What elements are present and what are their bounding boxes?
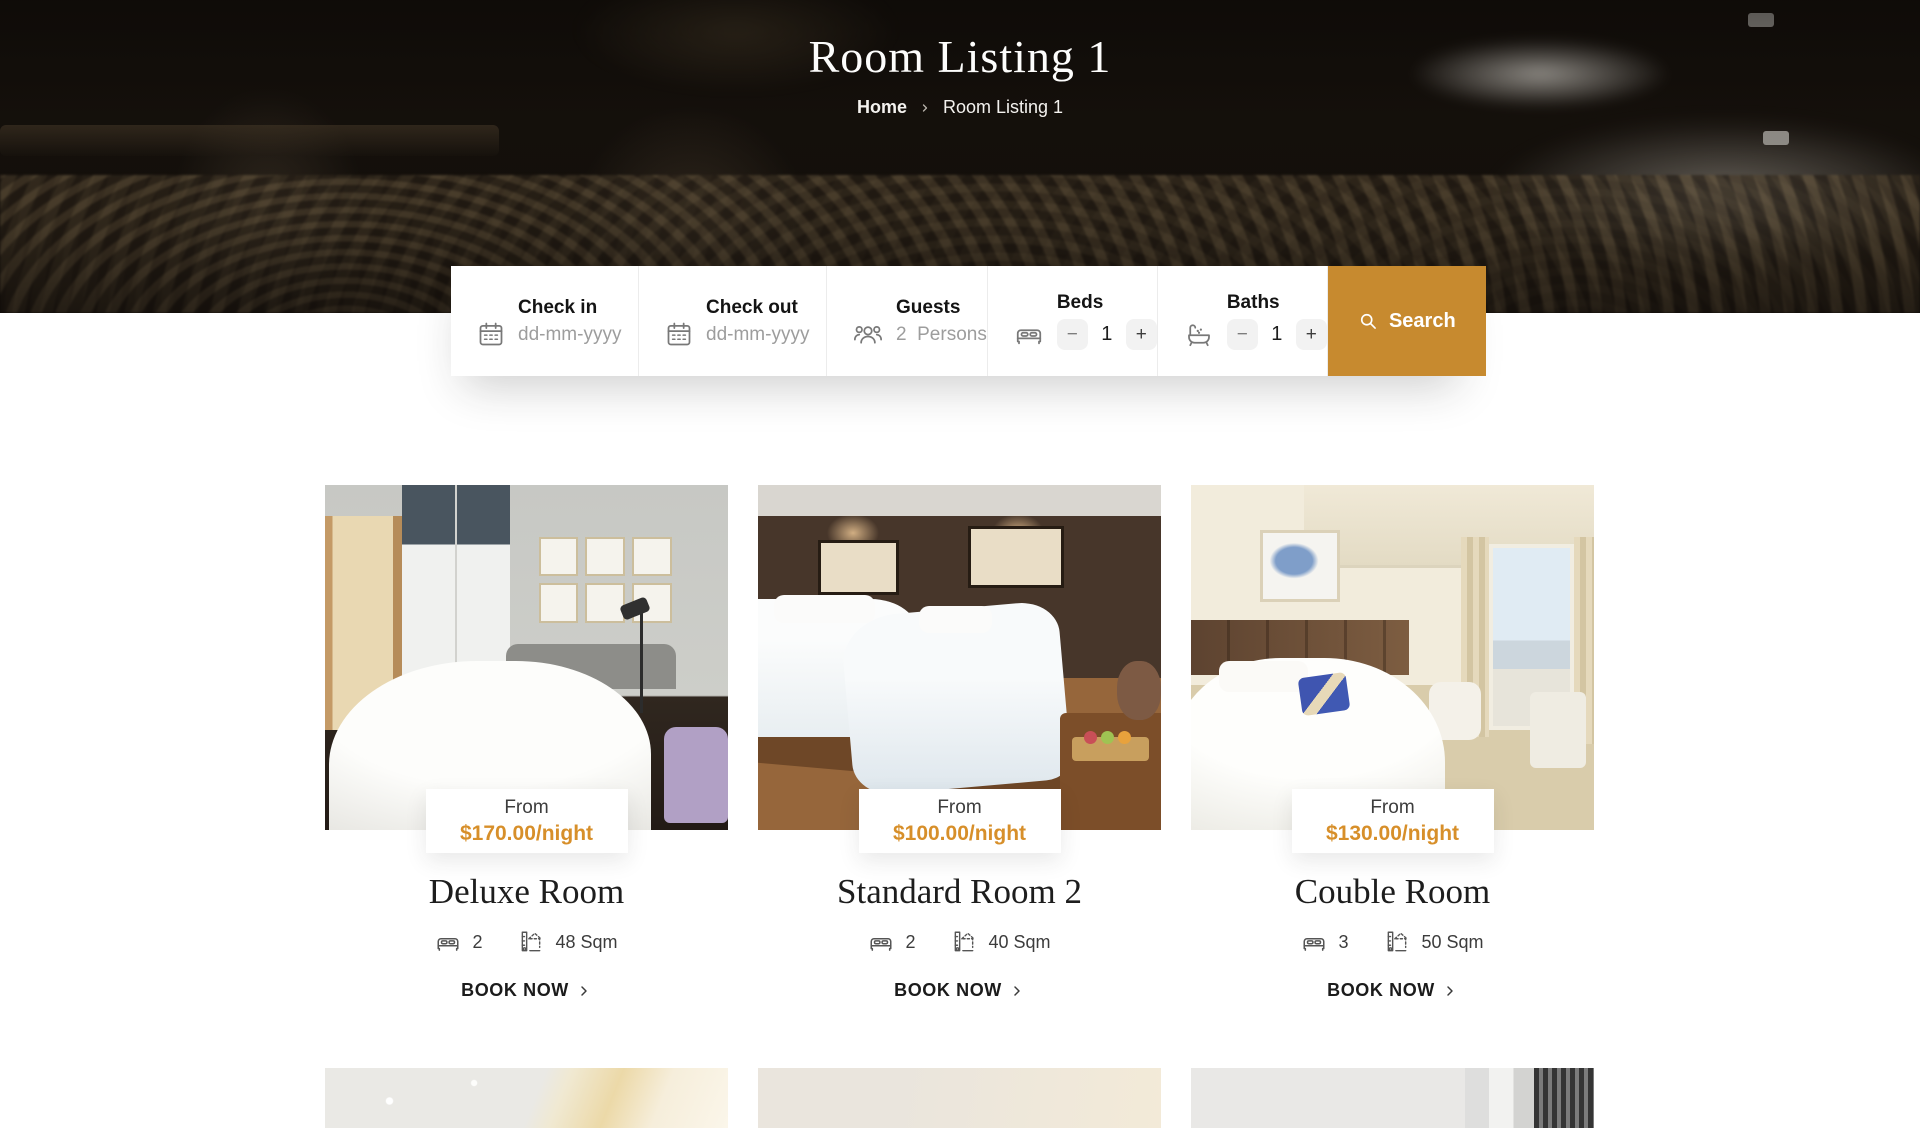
photo-wall-painting xyxy=(1260,530,1341,602)
check-in-input[interactable] xyxy=(518,324,638,346)
beds-feature: 2 xyxy=(868,929,915,955)
room-photo[interactable] xyxy=(758,485,1161,830)
breadcrumb-current: Room Listing 1 xyxy=(943,97,1063,118)
beds-increment-button[interactable]: + xyxy=(1126,319,1157,350)
photo-radiator xyxy=(1534,1068,1594,1128)
size-feature: 48 Sqm xyxy=(518,929,617,955)
photo-pillow xyxy=(774,595,875,623)
bed-icon xyxy=(1301,929,1327,955)
beds-feature: 3 xyxy=(1301,929,1348,955)
beds-count: 2 xyxy=(472,932,482,953)
book-now-label: BOOK NOW xyxy=(1327,980,1435,1001)
room-card: From $170.00/night Deluxe Room 2 xyxy=(325,485,728,1001)
search-button[interactable]: Search xyxy=(1328,266,1486,376)
chevron-right-icon xyxy=(919,102,931,114)
room-size-icon xyxy=(1384,929,1410,955)
room-size-icon xyxy=(518,929,544,955)
photo-pillow xyxy=(919,606,992,634)
beds-count: 2 xyxy=(905,932,915,953)
book-now-label: BOOK NOW xyxy=(461,980,569,1001)
price-badge: From $130.00/night xyxy=(1292,789,1494,853)
room-photo[interactable] xyxy=(325,485,728,830)
calendar-icon xyxy=(477,320,505,348)
check-out-input[interactable] xyxy=(706,324,826,346)
room-size: 40 Sqm xyxy=(988,932,1050,953)
price-value: $170.00/night xyxy=(460,822,593,846)
price-prefix: From xyxy=(1370,797,1414,819)
breadcrumb-home-link[interactable]: Home xyxy=(857,97,907,118)
bed-icon xyxy=(435,929,461,955)
beds-decrement-button[interactable]: − xyxy=(1057,319,1088,350)
check-in-field[interactable]: Check in xyxy=(451,266,639,376)
photo-floor-lamp xyxy=(640,609,643,713)
photo-wall-frame xyxy=(968,526,1065,588)
room-photo[interactable] xyxy=(1191,485,1594,830)
room-size: 48 Sqm xyxy=(555,932,617,953)
guests-icon xyxy=(853,319,883,349)
room-card-grid: From $170.00/night Deluxe Room 2 xyxy=(325,485,1595,1001)
price-prefix: From xyxy=(504,797,548,819)
baths-label: Baths xyxy=(1227,292,1327,314)
beds-field: Beds − 1 + xyxy=(988,266,1158,376)
baths-field: Baths − 1 + xyxy=(1158,266,1328,376)
chevron-right-icon xyxy=(1442,983,1458,999)
size-feature: 40 Sqm xyxy=(951,929,1050,955)
beds-label: Beds xyxy=(1057,292,1157,314)
photo-pillow xyxy=(1219,661,1308,692)
page-title: Room Listing 1 xyxy=(809,30,1112,83)
price-value: $130.00/night xyxy=(1326,822,1459,846)
book-now-link[interactable]: BOOK NOW xyxy=(1191,980,1594,1001)
room-features: 3 50 Sqm xyxy=(1191,929,1594,955)
bed-icon xyxy=(868,929,894,955)
bath-icon xyxy=(1184,319,1214,349)
chevron-right-icon xyxy=(1009,983,1025,999)
guests-field[interactable]: Guests 2 Persons xyxy=(827,266,988,376)
bed-icon xyxy=(1014,319,1044,349)
baths-stepper: − 1 + xyxy=(1227,319,1327,350)
room-size: 50 Sqm xyxy=(1421,932,1483,953)
price-badge: From $100.00/night xyxy=(859,789,1061,853)
photo-accent-pillow xyxy=(1297,672,1350,716)
breadcrumb: Home Room Listing 1 xyxy=(857,97,1063,118)
room-photo-partial[interactable] xyxy=(1191,1068,1594,1128)
room-name[interactable]: Couble Room xyxy=(1191,872,1594,912)
check-in-label: Check in xyxy=(518,297,638,319)
room-photo-partial[interactable] xyxy=(758,1068,1161,1128)
photo-desk-chair xyxy=(1530,692,1586,768)
size-feature: 50 Sqm xyxy=(1384,929,1483,955)
book-now-link[interactable]: BOOK NOW xyxy=(758,980,1161,1001)
photo-wall-frame xyxy=(818,540,899,595)
photo-cushion xyxy=(1117,661,1161,720)
beds-feature: 2 xyxy=(435,929,482,955)
check-out-field[interactable]: Check out xyxy=(639,266,827,376)
room-size-icon xyxy=(951,929,977,955)
calendar-icon xyxy=(665,320,693,348)
price-badge: From $170.00/night xyxy=(426,789,628,853)
guests-value: 2 Persons xyxy=(896,324,987,346)
baths-increment-button[interactable]: + xyxy=(1296,319,1327,350)
beds-count: 3 xyxy=(1338,932,1348,953)
room-name[interactable]: Deluxe Room xyxy=(325,872,728,912)
book-now-label: BOOK NOW xyxy=(894,980,1002,1001)
beds-stepper: − 1 + xyxy=(1057,319,1157,350)
baths-value: 1 xyxy=(1270,323,1284,346)
room-features: 2 48 Sqm xyxy=(325,929,728,955)
photo-chair xyxy=(664,727,728,824)
chevron-right-icon xyxy=(576,983,592,999)
beds-value: 1 xyxy=(1100,323,1114,346)
photo-wall-frames xyxy=(539,537,672,623)
book-now-link[interactable]: BOOK NOW xyxy=(325,980,728,1001)
room-features: 2 40 Sqm xyxy=(758,929,1161,955)
room-photo-partial[interactable] xyxy=(325,1068,728,1128)
photo-fruit-plate xyxy=(1084,723,1140,744)
price-value: $100.00/night xyxy=(893,822,1026,846)
next-room-row xyxy=(325,1068,1595,1128)
check-out-label: Check out xyxy=(706,297,826,319)
price-prefix: From xyxy=(937,797,981,819)
room-card: From $130.00/night Couble Room 3 xyxy=(1191,485,1594,1001)
baths-decrement-button[interactable]: − xyxy=(1227,319,1258,350)
room-name[interactable]: Standard Room 2 xyxy=(758,872,1161,912)
search-icon xyxy=(1358,311,1378,331)
booking-search-bar: Check in Check out Guests 2 Persons xyxy=(451,266,1469,376)
search-button-label: Search xyxy=(1389,310,1456,333)
guests-label: Guests xyxy=(896,297,987,319)
room-card: From $100.00/night Standard Room 2 2 xyxy=(758,485,1161,1001)
